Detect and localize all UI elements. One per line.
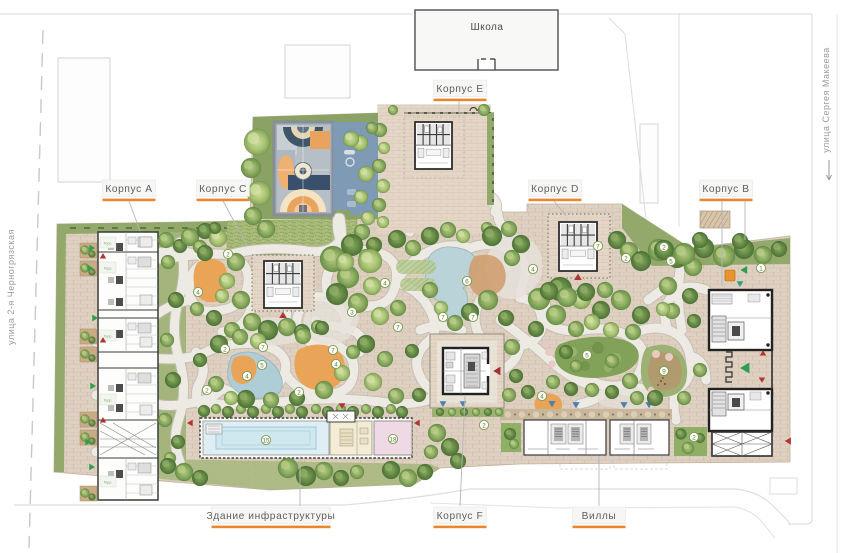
svg-text:4: 4 [531,266,535,273]
svg-text:Корпус Е: Корпус Е [436,84,483,95]
svg-text:4: 4 [245,373,249,380]
svg-text:18: 18 [390,436,397,443]
svg-text:2: 2 [624,255,628,262]
svg-text:9: 9 [662,368,666,375]
svg-text:2: 2 [226,251,230,258]
svg-text:Корпус С: Корпус С [199,184,247,195]
svg-text:7: 7 [441,314,445,321]
svg-text:Здание инфраструктуры: Здание инфраструктуры [207,510,336,522]
svg-text:7: 7 [396,324,400,331]
svg-text:15: 15 [263,437,270,444]
svg-text:5: 5 [260,362,264,369]
svg-text:Tepp.: Tepp. [104,481,113,485]
svg-text:4: 4 [540,393,544,400]
svg-text:2: 2 [223,346,227,353]
svg-text:2: 2 [482,422,486,429]
svg-text:2: 2 [692,434,696,441]
svg-text:улица 2-я Черногрязская: улица 2-я Черногрязская [6,229,16,345]
svg-text:Виллы: Виллы [582,511,617,522]
svg-text:7: 7 [471,314,475,321]
svg-text:6: 6 [465,278,469,285]
svg-text:5: 5 [585,352,589,359]
svg-text:Tepp.: Tepp. [104,399,113,403]
svg-text:Корпус F: Корпус F [437,511,484,522]
svg-text:Корпус В: Корпус В [702,184,749,195]
svg-text:Tepp.: Tepp. [104,267,113,271]
svg-text:4: 4 [383,280,387,287]
svg-text:5: 5 [669,258,673,265]
svg-text:4: 4 [334,361,338,368]
svg-text:улица Сергея Макеева: улица Сергея Макеева [821,47,831,153]
svg-text:2: 2 [297,389,301,396]
svg-text:Корпус А: Корпус А [105,184,152,195]
svg-text:1: 1 [759,265,763,272]
svg-text:7: 7 [596,243,600,250]
svg-text:7: 7 [331,347,335,354]
svg-text:Tepp.: Tepp. [104,335,113,339]
svg-text:7: 7 [261,344,265,351]
svg-text:Tepp.: Tepp. [104,242,113,246]
svg-text:3: 3 [350,309,354,316]
svg-text:2: 2 [662,244,666,251]
svg-text:Школа: Школа [471,22,504,33]
svg-text:4: 4 [196,289,200,296]
svg-text:2: 2 [205,387,209,394]
svg-text:Корпус D: Корпус D [531,184,579,195]
